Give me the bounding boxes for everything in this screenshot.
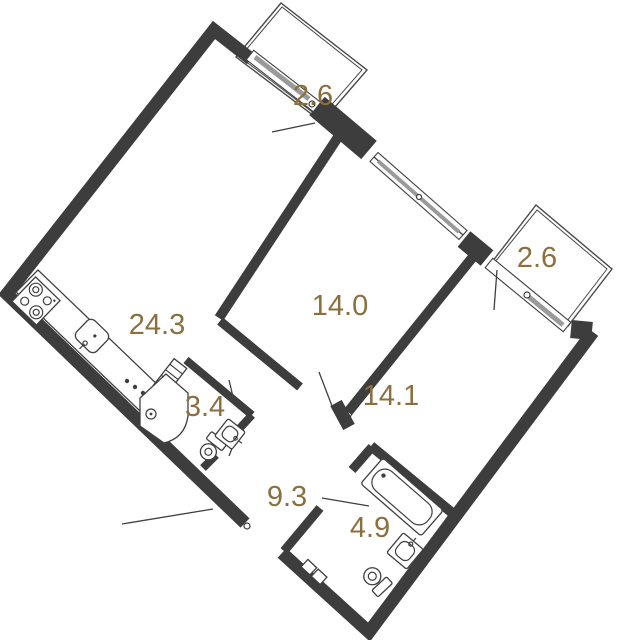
bath-small-wall-east-upper xyxy=(240,415,252,428)
area-label-bedroom-2: 14.1 xyxy=(363,380,419,412)
partition-bedroom1-hall xyxy=(220,321,300,387)
window-bedroom-1 xyxy=(370,153,467,240)
floor-plan-drawing: 2.6 24.3 14.0 14.1 3.4 2.6 9.3 4.9 xyxy=(0,0,625,640)
floor-plan: 2.6 24.3 14.0 14.1 3.4 2.6 9.3 4.9 xyxy=(0,0,625,640)
wall-bottom-and-right xyxy=(282,332,593,632)
area-label-balcony-top: 2.6 xyxy=(293,80,333,112)
area-label-bedroom-1: 14.0 xyxy=(312,290,368,322)
toilet-large-icon xyxy=(359,563,392,597)
area-label-hallway: 9.3 xyxy=(267,481,307,513)
bath-large-wall-upper xyxy=(352,447,372,470)
facade-pier-2 xyxy=(464,239,487,258)
entrance-door-hinge xyxy=(244,523,250,529)
area-label-bathroom-small: 3.4 xyxy=(185,391,225,423)
bath-large-wall-lower xyxy=(284,508,320,551)
area-label-bathroom-large: 4.9 xyxy=(350,512,390,544)
counter-dot xyxy=(125,379,129,383)
area-label-balcony-right: 2.6 xyxy=(517,242,557,274)
counter-dot xyxy=(133,385,137,389)
leader-hallway xyxy=(322,498,369,506)
leader-entrance xyxy=(122,509,213,524)
facade-corner-pier xyxy=(571,329,592,331)
leader-balcony-top xyxy=(272,123,315,132)
door-leaf-bedroom1 xyxy=(319,372,332,406)
area-label-kitchen-living: 24.3 xyxy=(129,309,185,341)
